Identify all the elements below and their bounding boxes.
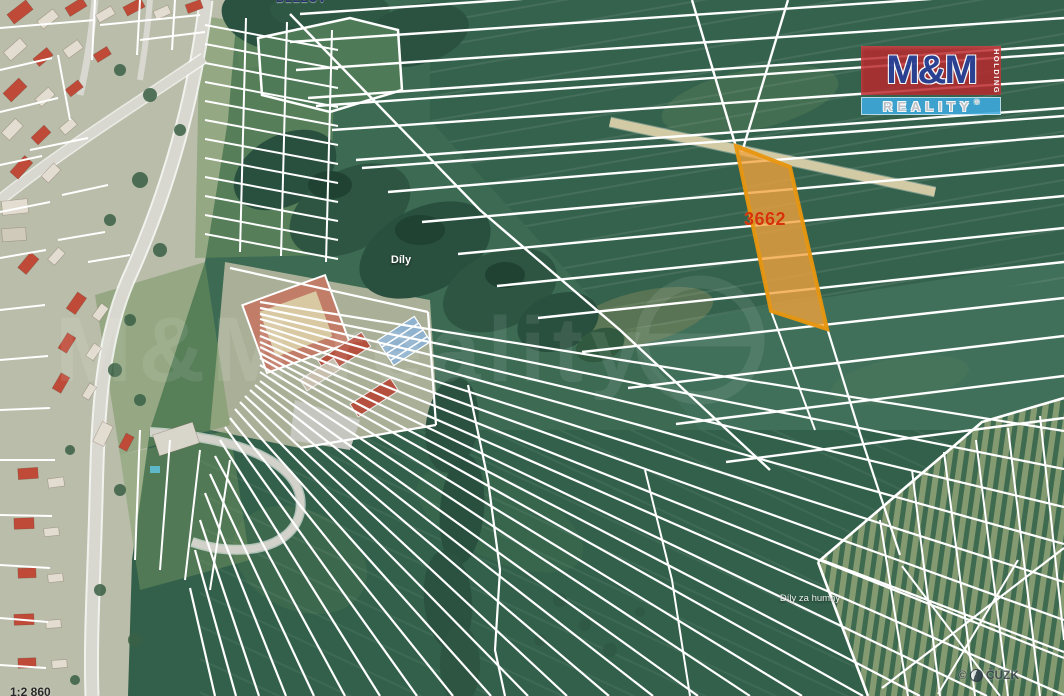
cadastral-map[interactable]: M&M reality 3662 Díly Díly za humny BLEŽ… — [0, 0, 1064, 696]
map-graphics — [0, 0, 1064, 696]
